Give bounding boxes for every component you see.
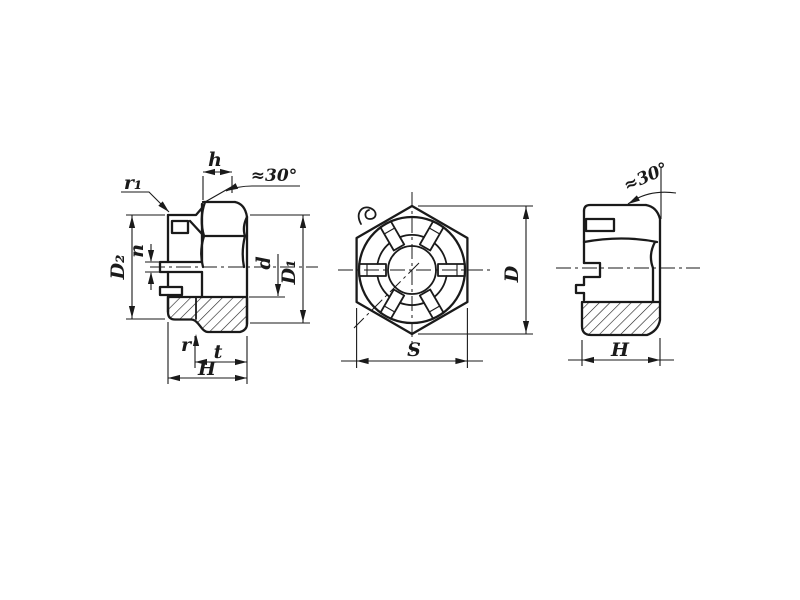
left-view-chamfer-reference-line xyxy=(205,186,233,202)
label-n: n xyxy=(126,244,148,258)
arrowhead xyxy=(235,359,247,365)
label-D: D xyxy=(501,265,523,283)
label-r: r xyxy=(181,334,193,356)
label-angle-30-left: ≈30° xyxy=(251,166,297,186)
arrowhead xyxy=(582,357,594,363)
arrowhead xyxy=(220,169,232,175)
arrowhead xyxy=(523,321,529,333)
arrowhead xyxy=(235,375,247,381)
drawing-sheet: h ≈30° r₁ D₂ n d D₁ r t H xyxy=(0,0,800,600)
right-view-body xyxy=(576,205,660,302)
right-view-section-hatch xyxy=(582,302,660,335)
right-view-side-section: ≈30° H xyxy=(556,159,700,366)
arrowhead xyxy=(148,272,154,284)
arrowhead xyxy=(129,306,135,318)
left-view-side-section: h ≈30° r₁ D₂ n d D₁ r t H xyxy=(107,149,318,384)
left-view-section-hatch xyxy=(168,297,247,332)
label-S: S xyxy=(407,339,421,361)
arrowhead xyxy=(148,250,154,262)
arrowhead xyxy=(168,375,180,381)
arrowhead xyxy=(523,207,529,219)
arrowhead xyxy=(225,183,238,194)
castellated-nut-drawing: h ≈30° r₁ D₂ n d D₁ r t H xyxy=(0,0,800,600)
front-view-loop-mark xyxy=(359,207,376,224)
arrowhead xyxy=(300,216,306,228)
label-H-right: H xyxy=(610,339,630,361)
arrowhead xyxy=(193,334,199,346)
arrowhead xyxy=(129,216,135,228)
label-d: d xyxy=(253,256,275,269)
arrowhead xyxy=(357,358,369,364)
label-h: h xyxy=(208,149,222,171)
label-angle-30-right: ≈30° xyxy=(621,159,672,196)
label-r1: r₁ xyxy=(124,172,142,194)
arrowhead xyxy=(648,357,660,363)
arrowhead xyxy=(300,310,306,322)
label-D1: D₁ xyxy=(278,260,300,286)
arrowhead xyxy=(455,358,467,364)
dimension-arrowheads xyxy=(129,169,660,381)
arrowhead xyxy=(275,284,281,296)
front-view: S D xyxy=(338,192,533,368)
